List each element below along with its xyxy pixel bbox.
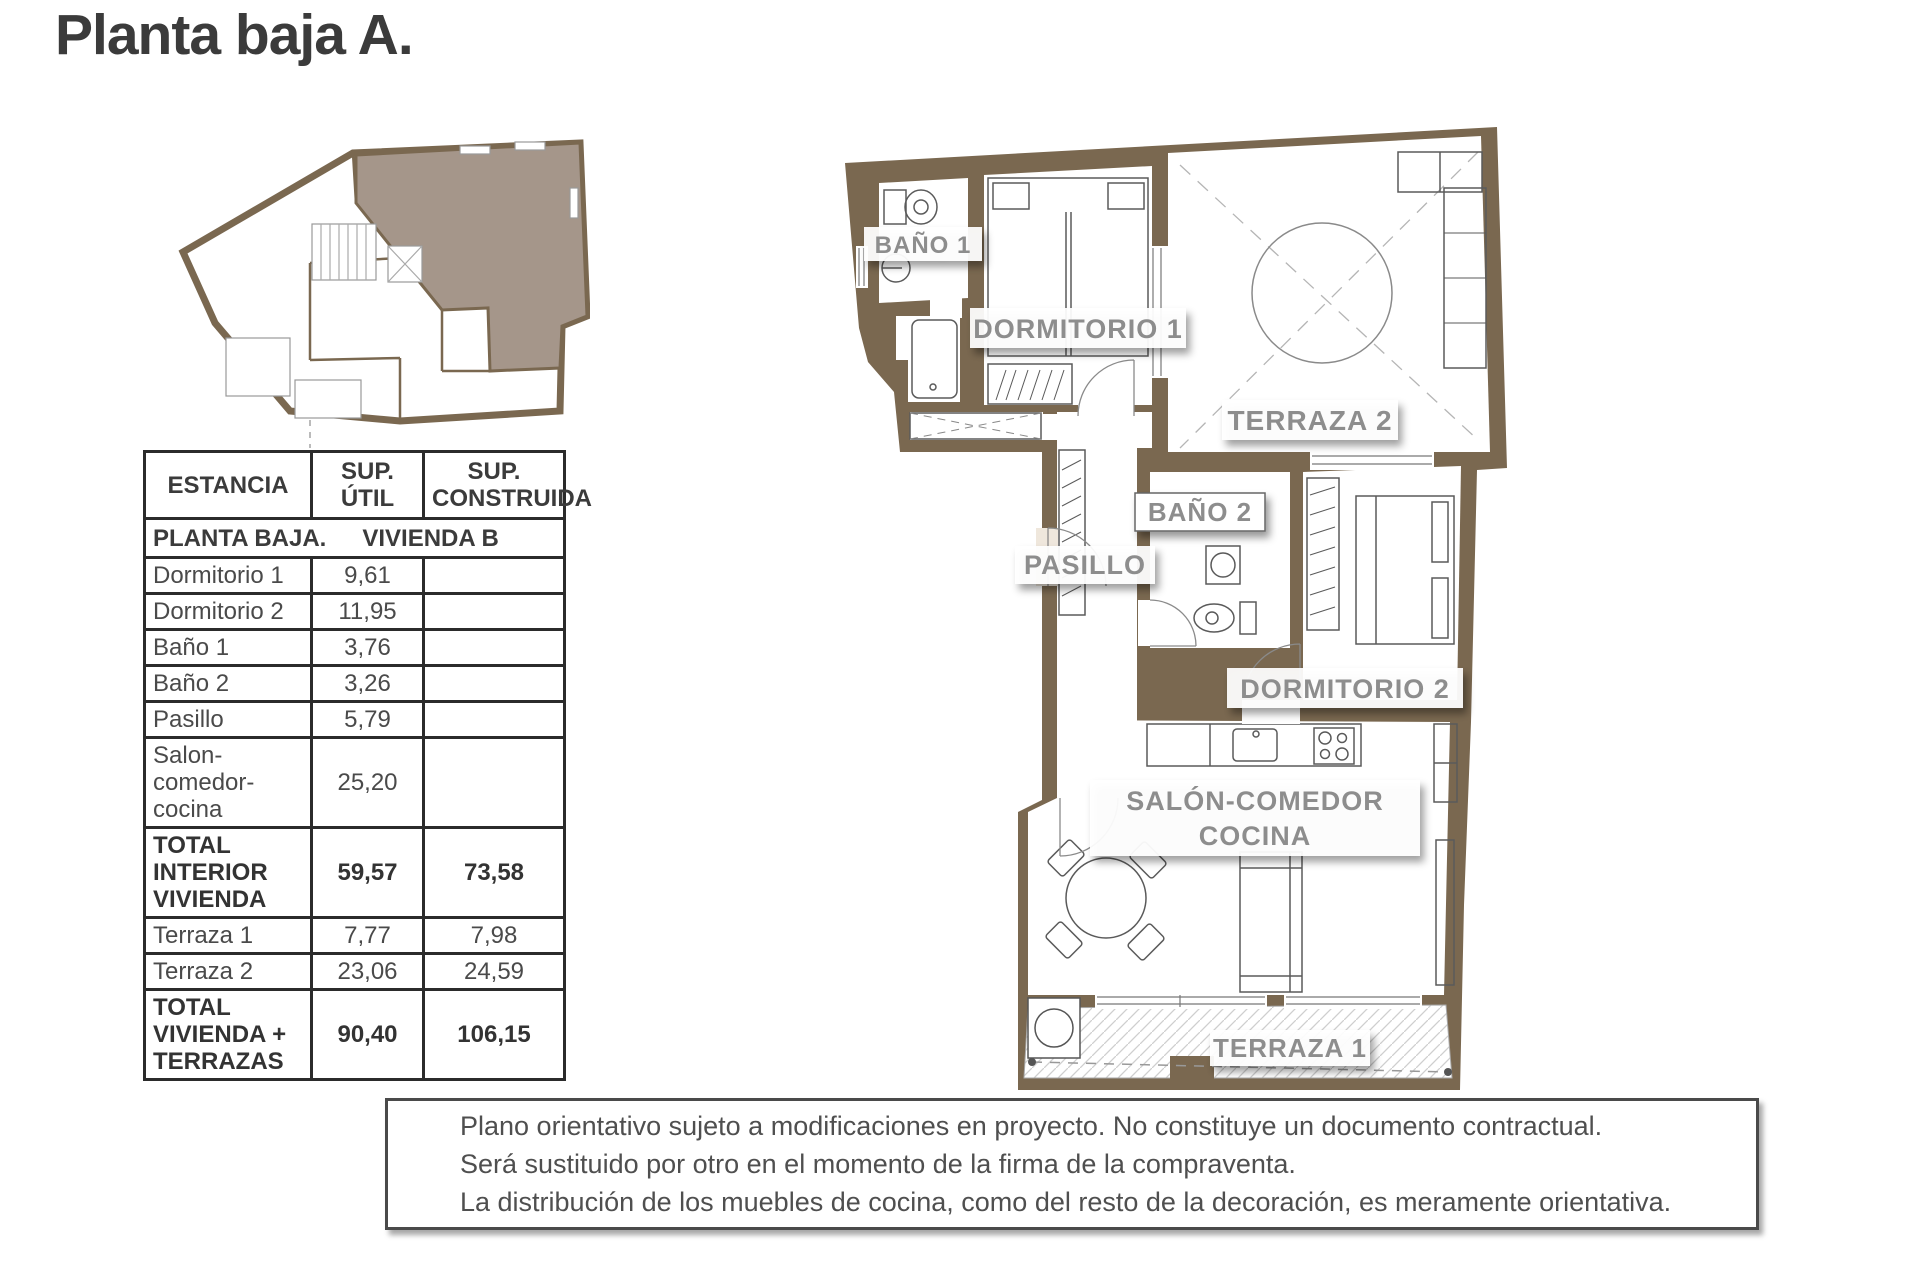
table-row-dormitorio-2: Dormitorio 211,95 [145, 594, 565, 630]
page-title: Planta baja A. [55, 2, 413, 68]
label-salon-comedor-cocina: SALÓN-COMEDOR COCINA [1090, 780, 1420, 856]
cell-name: Baño 1 [145, 630, 312, 666]
cell-sup-util: 90,40 [312, 990, 424, 1080]
label-terraza2: TERRAZA 2 [1222, 400, 1398, 440]
section-subtitle: VIVIENDA B [362, 525, 498, 552]
cell-sup-construida: 7,98 [424, 918, 565, 954]
cell-sup-util: 9,61 [312, 558, 424, 594]
svg-text:PASILLO: PASILLO [1024, 550, 1146, 580]
disclaimer-line-2: Será sustituido por otro en el momento d… [388, 1145, 1756, 1183]
section-row: PLANTA BAJA.VIVIENDA B [145, 519, 565, 558]
table-row-ba-o-1: Baño 13,76 [145, 630, 565, 666]
label-bano1: BAÑO 1 [864, 227, 982, 261]
svg-text:BAÑO 1: BAÑO 1 [875, 231, 972, 259]
label-dormitorio1: DORMITORIO 1 [970, 308, 1186, 348]
svg-text:TERRAZA 1: TERRAZA 1 [1213, 1033, 1367, 1063]
cell-sup-util: 23,06 [312, 954, 424, 990]
cell-name: TOTAL VIVIENDA + TERRAZAS [145, 990, 312, 1080]
table-row-pasillo: Pasillo5,79 [145, 702, 565, 738]
disclaimer-line-1: Plano orientativo sujeto a modificacione… [388, 1107, 1756, 1145]
cell-sup-util: 59,57 [312, 828, 424, 918]
label-dormitorio2: DORMITORIO 2 [1227, 668, 1463, 708]
window-terraza2-dorm2 [1310, 452, 1434, 470]
floor-plan: BAÑO 1 DORMITORIO 1 TERRAZA 2 BAÑO 2 PAS… [828, 105, 1528, 1105]
cell-sup-util: 3,76 [312, 630, 424, 666]
svg-text:DORMITORIO 1: DORMITORIO 1 [973, 314, 1183, 344]
table-row-salon-comedor-cocina: Salon-comedor-cocina25,20 [145, 738, 565, 828]
cell-sup-construida [424, 630, 565, 666]
key-plan [160, 128, 590, 463]
table-row-ba-o-2: Baño 23,26 [145, 666, 565, 702]
svg-text:COCINA: COCINA [1199, 821, 1312, 851]
section-cell: PLANTA BAJA.VIVIENDA B [145, 519, 565, 558]
room-bano1-passage [930, 298, 962, 318]
cell-name: TOTAL INTERIOR VIVIENDA [145, 828, 312, 918]
disclaimer-line-3: La distribución de los muebles de cocina… [388, 1183, 1756, 1221]
key-plan-building [183, 142, 587, 448]
cell-name: Dormitorio 2 [145, 594, 312, 630]
cell-sup-util: 5,79 [312, 702, 424, 738]
cell-sup-construida [424, 594, 565, 630]
label-pasillo: PASILLO [1015, 546, 1155, 584]
cell-sup-construida: 24,59 [424, 954, 565, 990]
col-header-sup-til: SUP. ÚTIL [312, 452, 424, 519]
cell-sup-construida: 106,15 [424, 990, 565, 1080]
svg-text:BAÑO 2: BAÑO 2 [1148, 497, 1252, 527]
cell-sup-construida: 73,58 [424, 828, 565, 918]
areas-table: ESTANCIASUP. ÚTILSUP. CONSTRUIDA PLANTA … [143, 450, 566, 1081]
cell-sup-util: 7,77 [312, 918, 424, 954]
areas-table-wrap: ESTANCIASUP. ÚTILSUP. CONSTRUIDA PLANTA … [143, 450, 563, 1081]
cell-sup-util: 25,20 [312, 738, 424, 828]
col-header-estancia: ESTANCIA [145, 452, 312, 519]
washing-machine-icon [1035, 1009, 1073, 1047]
dining-table-icon [1066, 858, 1146, 938]
cell-sup-construida [424, 738, 565, 828]
entry-passage [1043, 414, 1057, 440]
cell-sup-util: 11,95 [312, 594, 424, 630]
cell-name: Terraza 1 [145, 918, 312, 954]
terraza1-pillar [1170, 1056, 1214, 1088]
cell-name: Salon-comedor-cocina [145, 738, 312, 828]
areas-table-head: ESTANCIASUP. ÚTILSUP. CONSTRUIDA [145, 452, 565, 519]
label-terraza1: TERRAZA 1 [1210, 1030, 1370, 1066]
window-salon-terraza1-left [1095, 993, 1267, 1009]
svg-text:TERRAZA 2: TERRAZA 2 [1227, 405, 1392, 436]
table-row-total-interior-vivienda: TOTAL INTERIOR VIVIENDA59,5773,58 [145, 828, 565, 918]
cell-sup-construida [424, 558, 565, 594]
table-row-terraza-1: Terraza 17,777,98 [145, 918, 565, 954]
label-bano2: BAÑO 2 [1135, 493, 1265, 531]
table-row-terraza-2: Terraza 223,0624,59 [145, 954, 565, 990]
section-title: PLANTA BAJA. [153, 525, 326, 552]
window-salon-terraza1-right [1284, 993, 1422, 1009]
table-row-total-vivienda-terrazas: TOTAL VIVIENDA + TERRAZAS90,40106,15 [145, 990, 565, 1080]
cell-name: Pasillo [145, 702, 312, 738]
cell-name: Baño 2 [145, 666, 312, 702]
cell-name: Dormitorio 1 [145, 558, 312, 594]
cell-name: Terraza 2 [145, 954, 312, 990]
room-dormitorio2-floor [1303, 466, 1461, 700]
cell-sup-construida [424, 666, 565, 702]
table-row-dormitorio-1: Dormitorio 19,61 [145, 558, 565, 594]
cell-sup-construida [424, 702, 565, 738]
svg-text:SALÓN-COMEDOR: SALÓN-COMEDOR [1126, 785, 1384, 816]
room-dormitorio1-floor [984, 166, 1152, 405]
col-header-sup-construida: SUP. CONSTRUIDA [424, 452, 565, 519]
disclaimer-box: Plano orientativo sujeto a modificacione… [385, 1098, 1759, 1230]
areas-table-body: PLANTA BAJA.VIVIENDA BDormitorio 19,61Do… [145, 519, 565, 1080]
svg-text:DORMITORIO 2: DORMITORIO 2 [1240, 674, 1450, 704]
cell-sup-util: 3,26 [312, 666, 424, 702]
